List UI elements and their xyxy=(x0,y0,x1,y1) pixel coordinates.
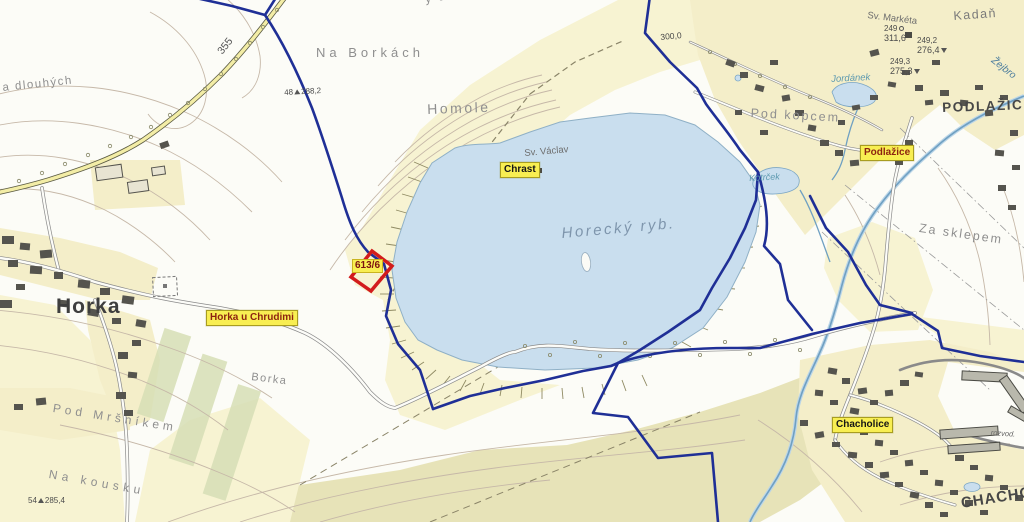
elevation-point-276: 249,2 276,4 xyxy=(917,36,948,56)
locality-label-na-borkach: Na Borkách xyxy=(316,46,424,59)
settlement-label-kadan: Kadaň xyxy=(953,7,997,23)
elevation-id: 54 xyxy=(28,496,37,505)
elevation-point-311: 249 311,6 xyxy=(884,24,906,44)
map-base-layer xyxy=(0,0,1024,522)
brook-label-jordanek: Jordánek xyxy=(831,73,871,85)
elevation-value: 300,0 xyxy=(660,30,682,42)
survey-triangle-icon xyxy=(38,498,44,503)
elevation-id: 249 xyxy=(884,24,897,33)
elevation-value: 311,6 xyxy=(884,33,906,43)
elevation-value: 285,4 xyxy=(45,496,65,505)
map-viewport[interactable]: Na Borkách Homole y u Homoli a dlouhých … xyxy=(0,0,1024,522)
parcel-number-label[interactable]: 613/6 xyxy=(352,259,383,273)
elevation-id: 249,2 xyxy=(917,36,937,45)
settlement-label-podlazice-capital: PODLAŽICE xyxy=(942,98,1024,115)
misc-label-rozvodna: rozvod. xyxy=(990,429,1015,438)
badge-horka-u-chrudimi[interactable]: Horka u Chrudimi xyxy=(206,310,298,326)
badge-chrast[interactable]: Chrast xyxy=(500,162,540,178)
elevation-value: 276,4 xyxy=(917,45,940,55)
elevation-value: 275,3 xyxy=(890,66,913,76)
survey-triangle-icon xyxy=(914,69,920,74)
elevation-point-288: 48288,2 xyxy=(284,86,321,97)
badge-chacholice[interactable]: Chacholice xyxy=(832,417,893,433)
elevation-point-300: 300,0 xyxy=(660,31,682,43)
elevation-value: 288,2 xyxy=(301,86,321,96)
elevation-id: 249,3 xyxy=(890,57,910,66)
settlement-label-horka: Horka xyxy=(56,296,121,317)
elevation-id: 48 xyxy=(284,88,293,97)
badge-podlazice[interactable]: Podlažice xyxy=(860,145,914,161)
elevation-point-285: 54285,4 xyxy=(28,496,65,505)
pond-label-kotrcek: Kotrček xyxy=(749,172,780,183)
fenced-enclosure xyxy=(153,276,178,296)
locality-label-homole: Homole xyxy=(427,100,491,116)
survey-triangle-icon xyxy=(294,89,300,94)
elevation-point-275: 249,3 275,3 xyxy=(890,57,921,77)
survey-triangle-icon xyxy=(941,48,947,53)
spot-height-icon xyxy=(899,26,904,31)
